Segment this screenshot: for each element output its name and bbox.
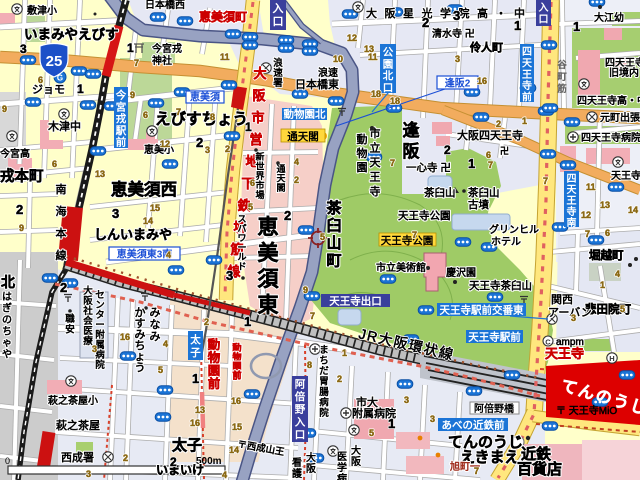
svg-text:えびすちょう: えびすちょう	[155, 110, 248, 128]
svg-text:駅: 駅	[116, 125, 127, 137]
svg-text:口: 口	[383, 82, 394, 94]
svg-text:7: 7	[310, 311, 315, 321]
svg-text:9: 9	[130, 90, 135, 100]
svg-text:場: 場	[255, 189, 264, 200]
svg-text:入: 入	[539, 2, 549, 14]
svg-text:の: の	[2, 315, 12, 326]
svg-text:1: 1	[573, 19, 580, 34]
svg-text:臼: 臼	[326, 217, 341, 235]
svg-text:7: 7	[412, 230, 417, 240]
svg-text:学: 学	[337, 461, 347, 474]
svg-text:市大: 市大	[356, 395, 378, 409]
svg-text:4: 4	[615, 269, 620, 279]
svg-text:6: 6	[38, 75, 43, 85]
svg-text:卍: 卍	[500, 146, 509, 156]
svg-text:寺: 寺	[522, 79, 532, 92]
svg-text:ampm: ampm	[556, 337, 584, 348]
svg-text:看: 看	[292, 456, 302, 469]
svg-text:前: 前	[232, 370, 241, 381]
svg-text:逢阪2: 逢阪2	[445, 77, 471, 90]
svg-text:1: 1	[600, 280, 605, 290]
svg-text:院: 院	[319, 407, 329, 419]
svg-text:いまみやえびす: いまみやえびす	[24, 27, 119, 42]
svg-text:11: 11	[586, 182, 596, 192]
svg-text:大: 大	[253, 66, 266, 81]
svg-text:15: 15	[150, 203, 160, 213]
svg-text:4: 4	[294, 157, 299, 167]
svg-text:山: 山	[326, 235, 341, 252]
svg-text:13: 13	[195, 405, 205, 415]
svg-text:院: 院	[95, 359, 105, 371]
svg-text:う: う	[135, 361, 146, 374]
svg-text:恵: 恵	[258, 215, 279, 239]
svg-text:天王寺茶臼山: 天王寺茶臼山	[469, 279, 532, 292]
svg-text:入: 入	[273, 2, 284, 15]
svg-text:2: 2	[60, 280, 67, 295]
svg-text:ル: ル	[237, 252, 246, 262]
svg-text:み: み	[150, 330, 161, 343]
svg-text:H: H	[609, 354, 614, 363]
svg-text:2: 2	[422, 15, 429, 30]
svg-text:須: 須	[258, 268, 280, 291]
svg-text:2: 2	[444, 143, 451, 157]
svg-text:四天王寺病院: 四天王寺病院	[581, 131, 640, 144]
svg-text:敷津小: 敷津小	[27, 4, 57, 17]
svg-text:13: 13	[600, 200, 610, 210]
svg-text:ジョモ: ジョモ	[32, 84, 65, 96]
svg-text:口: 口	[295, 429, 306, 441]
svg-text:元町出張: 元町出張	[600, 111, 640, 124]
svg-text:7: 7	[390, 158, 395, 168]
svg-text:立: 立	[370, 141, 381, 155]
svg-text:12: 12	[581, 210, 591, 220]
svg-text:園: 園	[383, 58, 394, 70]
svg-text:2: 2	[123, 453, 128, 463]
svg-text:線: 線	[56, 248, 67, 262]
svg-text:王: 王	[567, 195, 577, 207]
svg-text:16: 16	[120, 332, 130, 342]
svg-text:物: 物	[208, 350, 221, 365]
svg-text:1: 1	[192, 371, 199, 386]
svg-text:茶: 茶	[326, 199, 342, 217]
svg-text:4: 4	[166, 250, 171, 260]
svg-text:6: 6	[52, 159, 57, 169]
svg-text:2: 2	[225, 144, 230, 154]
svg-text:清水寺 卍: 清水寺 卍	[432, 27, 475, 40]
svg-text:北: 北	[1, 274, 15, 290]
svg-text:7: 7	[543, 176, 548, 186]
svg-text:北: 北	[383, 69, 394, 82]
svg-text:2: 2	[16, 202, 23, 217]
svg-text:谷: 谷	[557, 60, 567, 71]
svg-text:ド: ド	[237, 262, 246, 272]
svg-text:6: 6	[250, 178, 255, 188]
svg-text:1: 1	[342, 348, 347, 358]
svg-text:通: 通	[276, 164, 285, 174]
svg-text:恵美須東3南: 恵美須東3南	[117, 248, 173, 261]
svg-text:恵美須町: 恵美須町	[199, 9, 247, 24]
svg-text:16: 16	[190, 418, 200, 428]
svg-text:園: 園	[208, 364, 221, 378]
svg-text:天王寺出口: 天王寺出口	[329, 295, 382, 308]
svg-text:慶沢園: 慶沢園	[446, 266, 476, 279]
svg-text:界: 界	[255, 171, 264, 181]
svg-text:神社: 神社	[152, 54, 172, 67]
svg-text:ま: ま	[319, 345, 329, 356]
svg-text:ワ: ワ	[237, 233, 246, 243]
svg-text:天王寺駅前交番東: 天王寺駅前交番東	[440, 304, 524, 317]
svg-text:5: 5	[369, 428, 374, 438]
svg-text:安: 安	[65, 324, 75, 336]
svg-text:百貨店: 百貨店	[517, 460, 562, 478]
svg-text:天王寺公園: 天王寺公園	[381, 234, 434, 247]
svg-text:戎: 戎	[116, 112, 127, 125]
svg-text:四天王寺高・中: 四天王寺高・中	[577, 94, 640, 107]
svg-text:今: 今	[115, 89, 127, 102]
svg-text:18: 18	[371, 89, 381, 99]
svg-text:阪: 阪	[351, 455, 361, 468]
svg-text:7: 7	[176, 107, 181, 117]
svg-text:3: 3	[430, 414, 435, 424]
svg-text:6: 6	[605, 228, 610, 238]
svg-text:ち: ち	[2, 326, 12, 338]
svg-text:戎本町: 戎本町	[0, 167, 44, 185]
svg-text:町: 町	[326, 253, 341, 270]
svg-text:職: 職	[65, 314, 75, 325]
svg-text:阿: 阿	[295, 379, 306, 391]
svg-text:2: 2	[496, 119, 501, 129]
svg-text:王: 王	[522, 69, 532, 81]
svg-text:7: 7	[474, 466, 479, 476]
svg-text:公: 公	[383, 47, 394, 59]
svg-text:木津中: 木津中	[48, 120, 81, 133]
svg-text:14: 14	[143, 216, 153, 226]
svg-text:3: 3	[226, 268, 233, 283]
svg-text:6: 6	[486, 150, 491, 160]
svg-text:ち: ち	[319, 356, 329, 367]
svg-text:ぎ: ぎ	[2, 302, 12, 315]
svg-text:南: 南	[567, 216, 577, 229]
svg-text:18: 18	[390, 96, 400, 106]
svg-text:3: 3	[571, 313, 576, 323]
svg-text:12: 12	[347, 33, 357, 43]
svg-text:4: 4	[222, 470, 227, 480]
svg-text:天王寺公園: 天王寺公園	[398, 210, 451, 222]
svg-text:宮: 宮	[116, 100, 127, 113]
svg-text:8: 8	[307, 360, 312, 370]
svg-text:2: 2	[284, 208, 291, 223]
svg-text:病: 病	[319, 397, 329, 409]
svg-text:野: 野	[295, 404, 306, 416]
svg-text:口: 口	[273, 15, 284, 28]
svg-text:口: 口	[539, 15, 549, 26]
svg-text:天王寺: 天王寺	[545, 346, 584, 361]
svg-text:子: 子	[190, 347, 201, 359]
svg-text:新: 新	[255, 151, 264, 162]
svg-text:天: 天	[522, 57, 533, 69]
svg-text:署: 署	[273, 78, 283, 89]
svg-text:1: 1	[127, 41, 134, 55]
svg-text:1: 1	[522, 116, 527, 126]
svg-text:3: 3	[86, 469, 91, 479]
svg-text:しんいまみや: しんいまみや	[94, 227, 172, 242]
svg-text:天: 天	[567, 184, 578, 196]
svg-text:伶人町: 伶人町	[469, 40, 503, 54]
svg-text:1: 1	[468, 156, 475, 171]
svg-text:13: 13	[364, 44, 374, 54]
svg-text:16: 16	[477, 76, 487, 86]
svg-text:天: 天	[370, 157, 381, 169]
svg-text:9: 9	[2, 104, 7, 114]
svg-text:南: 南	[56, 183, 67, 196]
svg-text:関西: 関西	[551, 293, 573, 306]
svg-text:大江幼: 大江幼	[594, 11, 624, 24]
svg-text:大: 大	[351, 444, 361, 457]
svg-text:動: 動	[208, 337, 221, 352]
svg-text:だ: だ	[319, 366, 329, 377]
svg-text:阪: 阪	[252, 88, 266, 103]
svg-text:16: 16	[231, 396, 241, 406]
svg-text:今宮高: 今宮高	[0, 147, 30, 160]
svg-text:8: 8	[210, 112, 215, 122]
svg-text:胃: 胃	[319, 377, 329, 388]
svg-text:病: 病	[337, 472, 347, 480]
svg-text:な: な	[150, 318, 161, 331]
svg-text:四: 四	[567, 173, 577, 185]
svg-text:11: 11	[220, 52, 230, 62]
svg-text:14: 14	[229, 445, 239, 455]
svg-text:9: 9	[303, 285, 308, 295]
svg-text:動: 動	[357, 132, 368, 146]
svg-text:市立美術館: 市立美術館	[376, 261, 426, 274]
svg-text:世: 世	[255, 161, 264, 172]
svg-text:阪: 阪	[403, 142, 420, 161]
svg-text:寺: 寺	[370, 185, 381, 198]
svg-text:今宮戎: 今宮戎	[152, 42, 182, 55]
svg-text:1: 1	[77, 82, 84, 96]
svg-text:寺: 寺	[567, 205, 577, 218]
svg-text:0: 0	[5, 456, 10, 466]
svg-text:筋: 筋	[557, 83, 567, 95]
svg-text:1: 1	[244, 314, 251, 329]
svg-text:1: 1	[245, 120, 252, 134]
svg-text:前: 前	[208, 376, 221, 391]
svg-text:物: 物	[357, 146, 368, 160]
svg-text:太: 太	[189, 333, 201, 346]
svg-text:2: 2	[337, 374, 342, 384]
svg-text:天王寺: 天王寺	[611, 170, 640, 182]
svg-text:5: 5	[248, 202, 253, 212]
svg-text:前: 前	[522, 91, 532, 104]
svg-text:市: 市	[255, 180, 264, 191]
svg-text:逢: 逢	[403, 120, 420, 140]
svg-text:日本橋西: 日本橋西	[145, 0, 185, 11]
svg-text:太子: 太子	[172, 436, 202, 454]
svg-text:海: 海	[56, 204, 67, 218]
svg-text:3: 3	[205, 145, 210, 155]
svg-text:10: 10	[333, 54, 343, 64]
svg-text:阪: 阪	[306, 462, 316, 475]
svg-text:パ: パ	[237, 224, 246, 234]
svg-text:大阪星光学院高・中: 大阪星光学院高・中	[366, 6, 533, 20]
svg-text:入: 入	[295, 416, 306, 428]
svg-text:25: 25	[46, 53, 63, 70]
svg-text:茶臼山: 茶臼山	[424, 186, 456, 199]
svg-text:古墳: 古墳	[468, 198, 489, 211]
svg-text:堀越町: 堀越町	[589, 248, 624, 262]
svg-text:み: み	[150, 306, 161, 319]
svg-text:3: 3	[453, 8, 460, 23]
svg-text:12: 12	[160, 139, 170, 149]
svg-text:ゃ: ゃ	[2, 338, 12, 349]
svg-text:阿倍野橋: 阿倍野橋	[474, 402, 515, 415]
svg-text:や: や	[2, 349, 12, 361]
svg-text:15: 15	[232, 422, 242, 432]
svg-text:6: 6	[143, 110, 148, 120]
svg-text:13: 13	[95, 169, 105, 179]
svg-text:大: 大	[306, 451, 316, 464]
svg-text:大阪四天王寺: 大阪四天王寺	[457, 128, 523, 142]
svg-text:7: 7	[134, 58, 139, 68]
svg-text:通天閣: 通天閣	[287, 130, 319, 143]
svg-text:天王寺駅前: 天王寺駅前	[468, 331, 521, 344]
svg-text:あべの近鉄前: あべの近鉄前	[442, 419, 505, 432]
svg-text:2: 2	[204, 317, 209, 327]
svg-text:動物園北: 動物園北	[284, 108, 326, 121]
svg-text:4: 4	[163, 339, 168, 349]
svg-text:市: 市	[251, 110, 264, 125]
svg-text:一心寺 卍: 一心寺 卍	[406, 162, 451, 174]
svg-text:倍: 倍	[295, 390, 306, 403]
svg-text:腸: 腸	[319, 387, 329, 398]
svg-text:四: 四	[522, 46, 532, 58]
svg-text:ホテル: ホテル	[491, 236, 521, 248]
svg-text:5: 5	[620, 304, 625, 314]
svg-text:5: 5	[320, 232, 325, 242]
svg-text:5: 5	[158, 365, 163, 375]
svg-text:護: 護	[292, 467, 302, 480]
svg-text:茶臼山: 茶臼山	[468, 186, 500, 199]
svg-text:旧境内: 旧境内	[609, 66, 639, 79]
svg-text:3: 3	[455, 54, 460, 64]
svg-text:本: 本	[56, 226, 67, 240]
svg-text:は: は	[2, 291, 12, 303]
svg-text:営: 営	[249, 132, 262, 147]
svg-text:3: 3	[112, 206, 119, 221]
svg-text:2: 2	[196, 135, 203, 150]
svg-text:3: 3	[92, 344, 97, 354]
svg-text:ス: ス	[237, 214, 246, 224]
svg-text:天: 天	[276, 174, 285, 184]
svg-text:7: 7	[488, 160, 493, 170]
svg-text:9: 9	[19, 223, 24, 233]
svg-text:1: 1	[388, 416, 395, 431]
svg-text:医: 医	[337, 451, 347, 463]
svg-text:東: 東	[258, 294, 279, 317]
svg-text:美: 美	[258, 241, 279, 265]
svg-text:浪速: 浪速	[318, 66, 338, 79]
svg-text:町: 町	[557, 72, 567, 83]
svg-text:アーバン: アーバン	[548, 306, 592, 319]
svg-text:2: 2	[170, 455, 177, 469]
svg-text:14: 14	[628, 205, 638, 215]
svg-text:3: 3	[404, 395, 409, 405]
svg-text:日本橋東: 日本橋東	[295, 77, 339, 91]
svg-text:ー: ー	[237, 243, 246, 253]
svg-text:1: 1	[514, 18, 521, 33]
svg-text:3: 3	[20, 42, 27, 56]
svg-text:7: 7	[585, 229, 590, 239]
svg-text:西成署: 西成署	[61, 451, 94, 464]
svg-text:閣: 閣	[276, 183, 285, 193]
svg-text:園: 園	[357, 161, 368, 174]
svg-text:恵美須: 恵美須	[190, 91, 221, 104]
svg-text:2: 2	[294, 175, 299, 185]
svg-text:いまいけ: いまいけ	[156, 463, 204, 477]
svg-text:萩之茶屋: 萩之茶屋	[56, 418, 100, 432]
svg-text:恵美須西: 恵美須西	[111, 179, 177, 199]
svg-text:グリンヒル: グリンヒル	[489, 223, 539, 236]
svg-text:前: 前	[116, 136, 127, 149]
svg-text:王: 王	[370, 172, 381, 184]
svg-text:萩之茶屋小: 萩之茶屋小	[48, 394, 98, 407]
